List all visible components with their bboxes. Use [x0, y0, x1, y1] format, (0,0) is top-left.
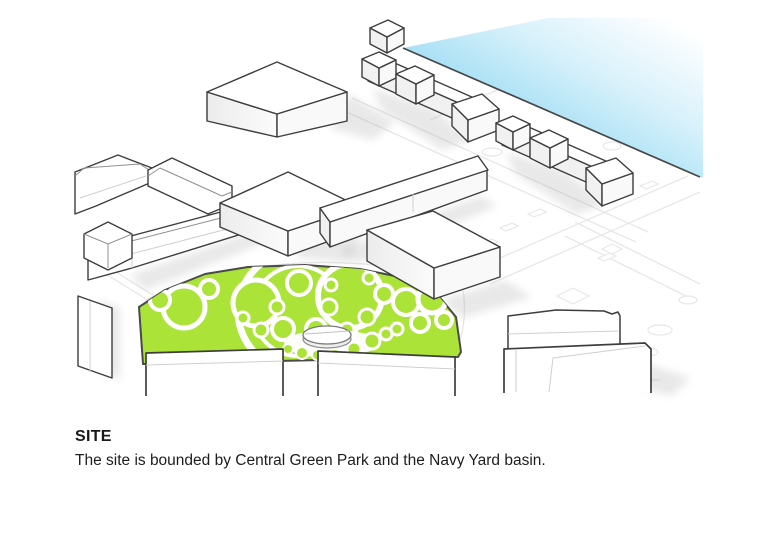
caption-title: SITE — [75, 428, 546, 446]
small-building-north — [370, 20, 404, 53]
site-axonometric-diagram — [0, 0, 780, 557]
caption-description: The site is bounded by Central Green Par… — [75, 452, 546, 470]
site-slab-west — [146, 349, 283, 396]
site-slab-east — [318, 351, 455, 396]
caption-block: SITE The site is bounded by Central Gree… — [75, 428, 546, 470]
page: SITE The site is bounded by Central Gree… — [0, 0, 780, 557]
buildings-southeast — [504, 310, 651, 393]
l-building-north — [207, 62, 347, 137]
park-pavilion — [303, 326, 351, 348]
